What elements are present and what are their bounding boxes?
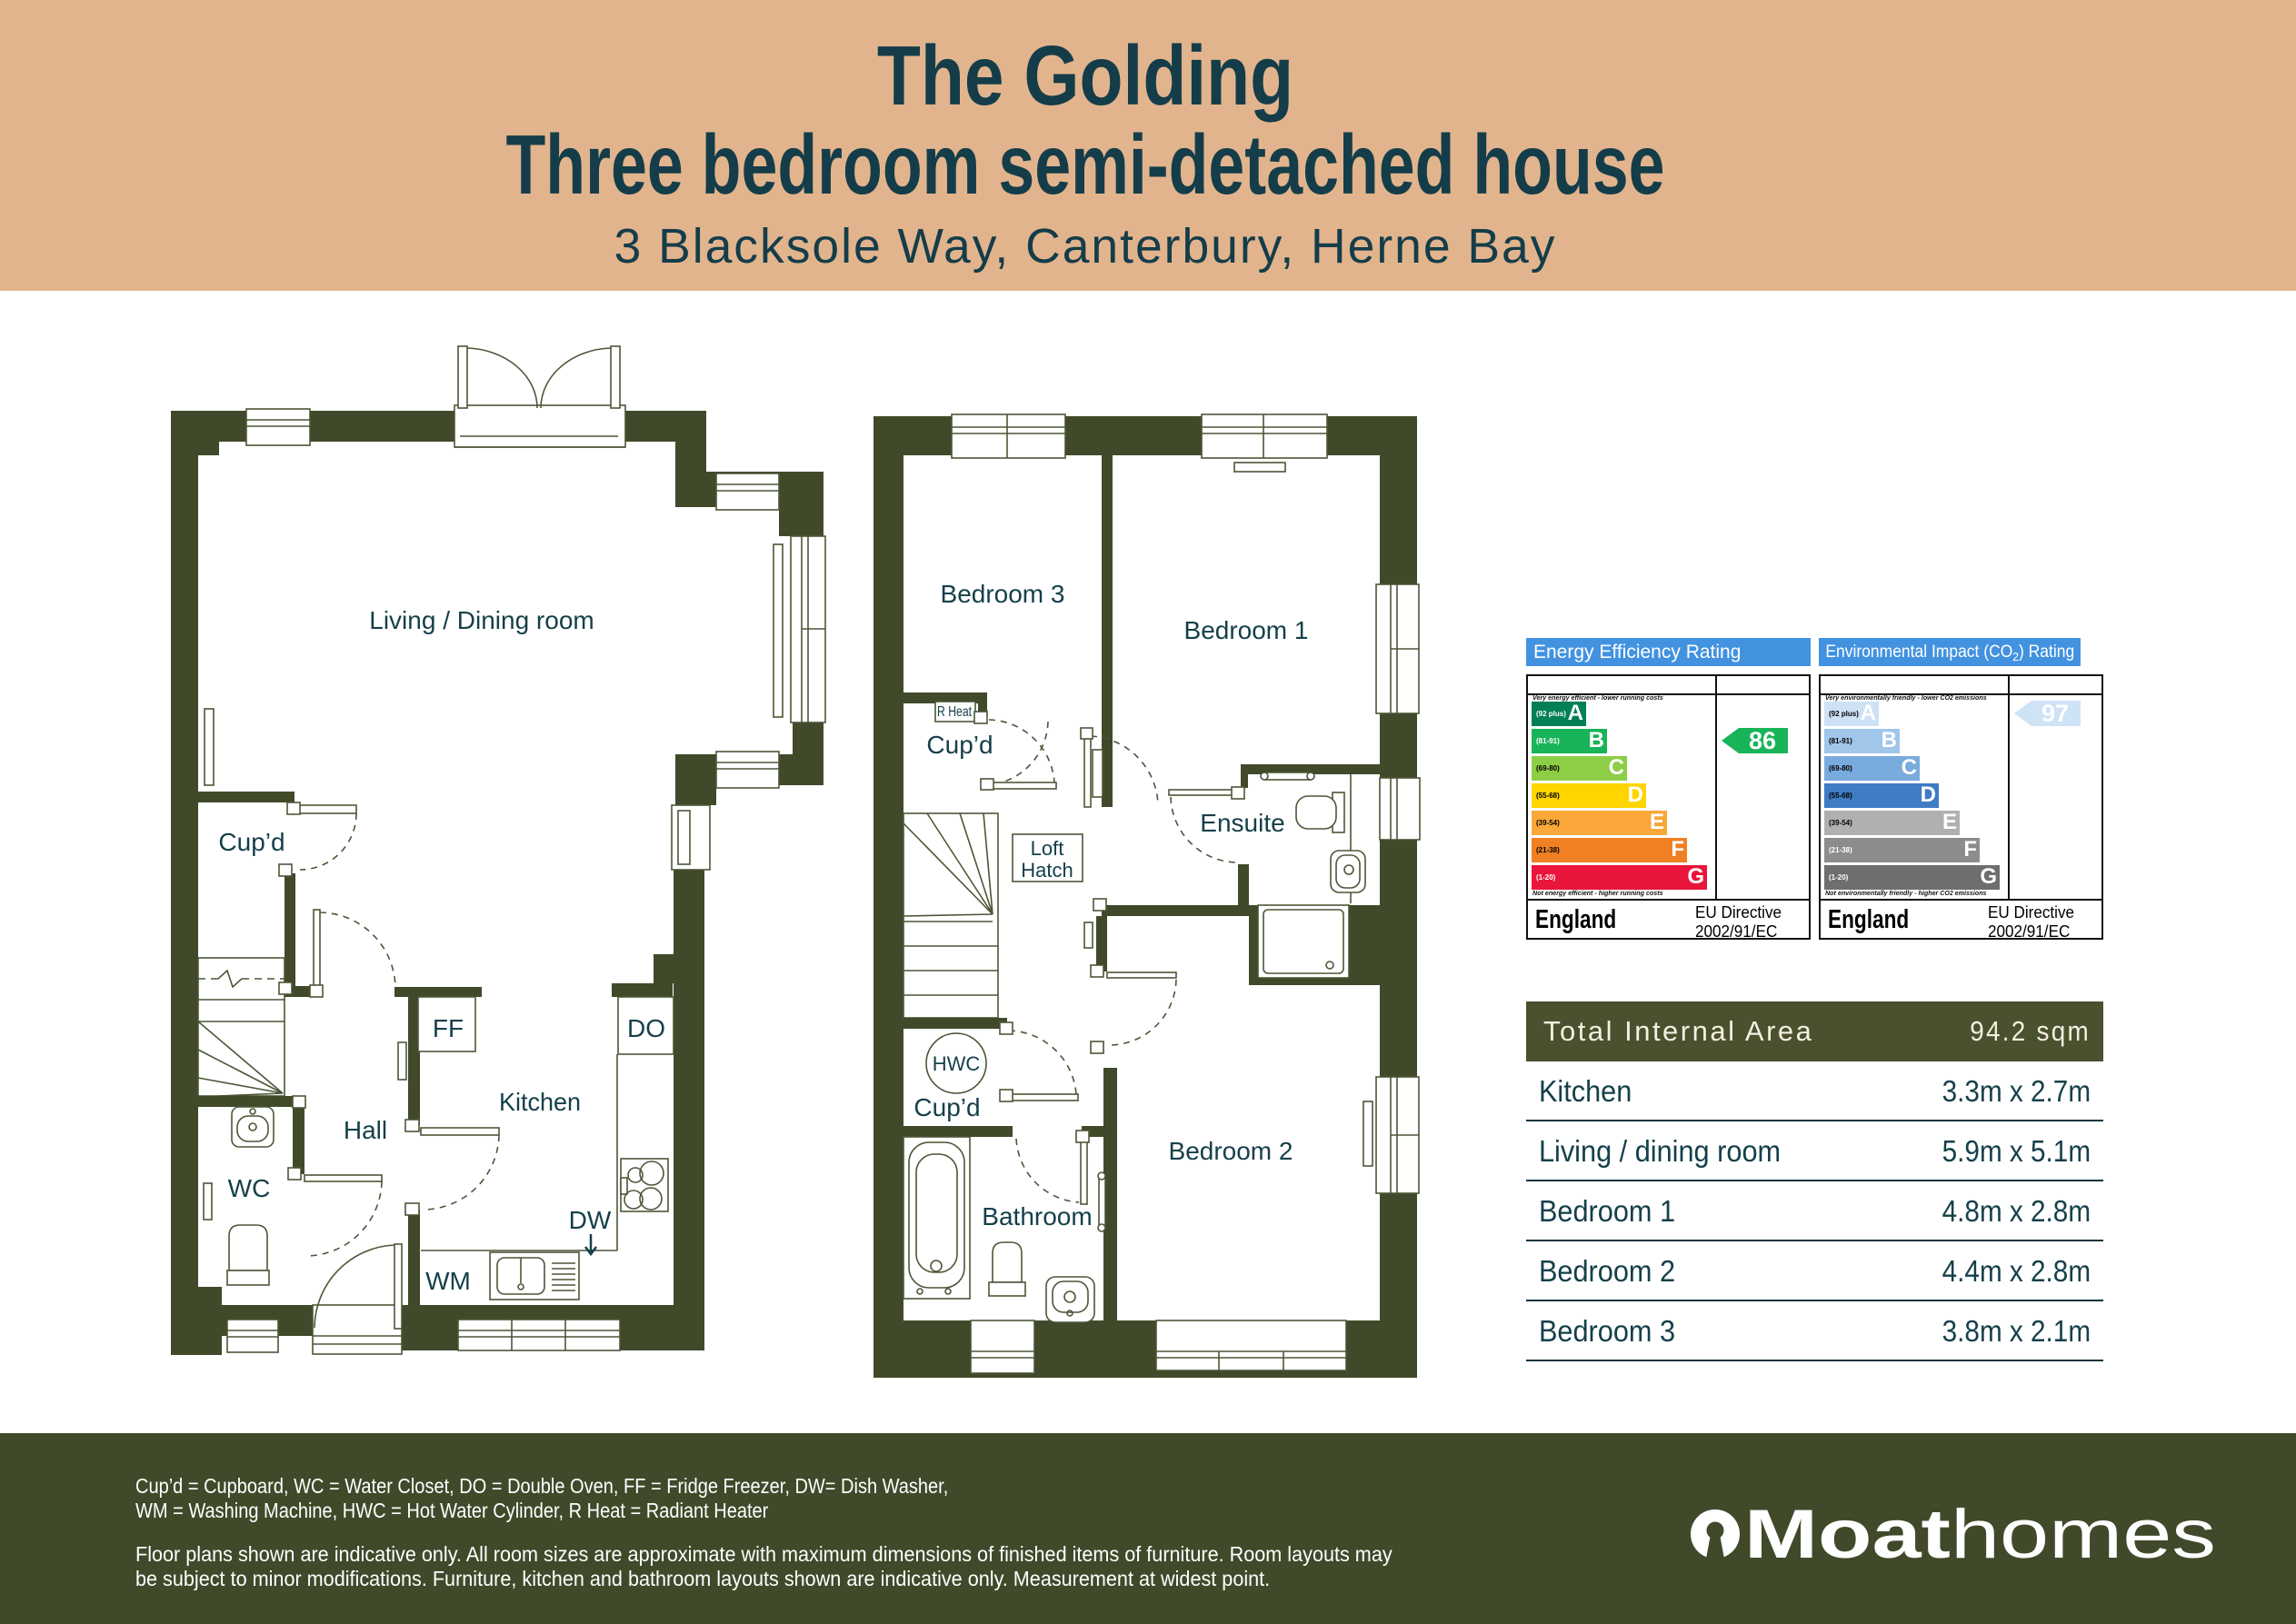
svg-text:DO: DO bbox=[627, 1014, 665, 1042]
svg-text:Bedroom 2: Bedroom 2 bbox=[1169, 1137, 1293, 1165]
svg-text:WM: WM bbox=[425, 1267, 471, 1295]
svg-text:97: 97 bbox=[2041, 700, 2069, 727]
svg-text:R Heat: R Heat bbox=[937, 704, 972, 720]
svg-text:Cup’d: Cup’d bbox=[218, 828, 285, 856]
svg-text:Ensuite: Ensuite bbox=[1200, 809, 1284, 837]
svg-text:Kitchen: Kitchen bbox=[499, 1088, 581, 1116]
svg-text:FF: FF bbox=[433, 1014, 464, 1042]
svg-text:Cup’d: Cup’d bbox=[926, 731, 993, 759]
svg-text:Cup’d: Cup’d bbox=[913, 1093, 980, 1121]
svg-text:Hall: Hall bbox=[344, 1116, 387, 1144]
svg-text:HWC: HWC bbox=[933, 1052, 981, 1075]
svg-text:WC: WC bbox=[228, 1174, 271, 1202]
svg-text:Bathroom: Bathroom bbox=[982, 1202, 1092, 1230]
svg-text:Living / Dining room: Living / Dining room bbox=[369, 606, 594, 634]
svg-text:Bedroom 1: Bedroom 1 bbox=[1184, 616, 1309, 644]
svg-text:86: 86 bbox=[1749, 727, 1776, 754]
svg-text:DW: DW bbox=[569, 1206, 612, 1234]
svg-text:Loft: Loft bbox=[1031, 837, 1064, 860]
svg-text:Hatch: Hatch bbox=[1021, 859, 1073, 882]
svg-text:Bedroom 3: Bedroom 3 bbox=[941, 580, 1065, 608]
